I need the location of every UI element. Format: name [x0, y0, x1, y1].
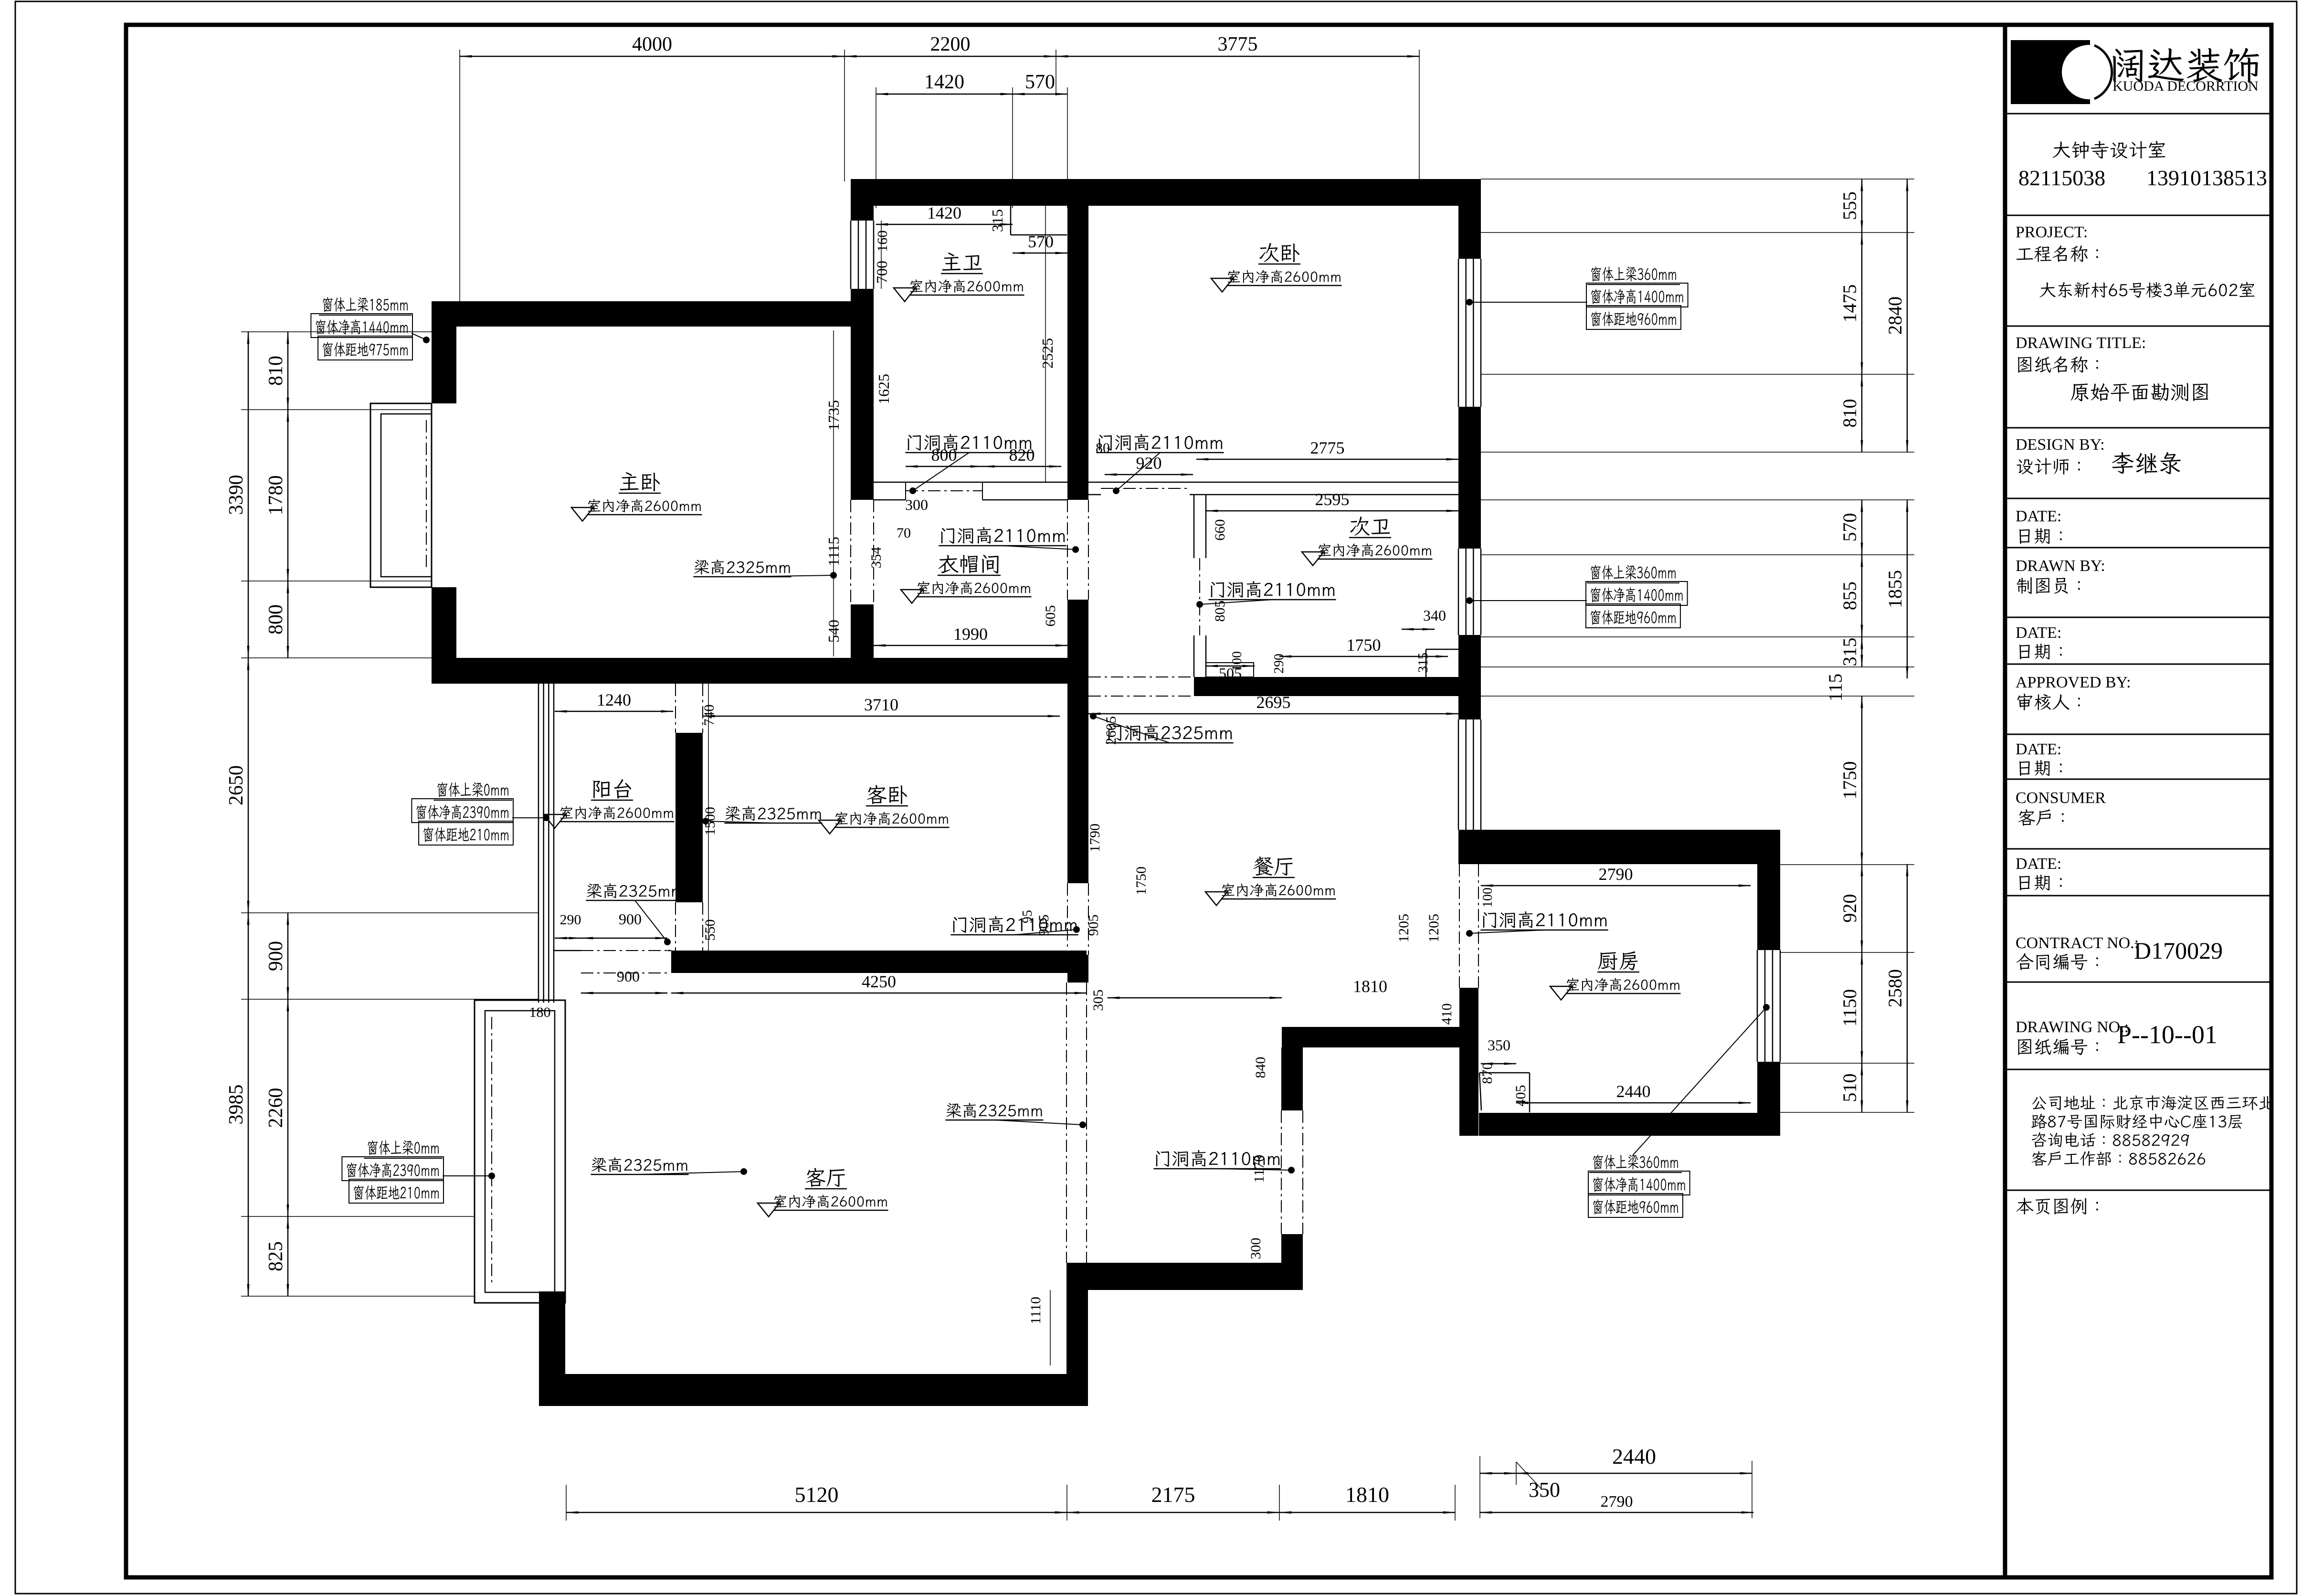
svg-text:810: 810	[1839, 399, 1860, 428]
svg-text:1810: 1810	[1353, 977, 1387, 996]
svg-text:1205: 1205	[1426, 914, 1442, 942]
svg-text:13910138513: 13910138513	[2146, 166, 2267, 190]
svg-text:900: 900	[265, 941, 287, 971]
svg-text:350: 350	[1529, 1478, 1560, 1501]
svg-text:50: 50	[686, 874, 700, 889]
svg-text:3985: 3985	[225, 1085, 247, 1125]
svg-text:2260: 2260	[265, 1088, 287, 1128]
svg-text:DESIGN BY:: DESIGN BY:	[2016, 436, 2105, 454]
svg-text:CONSUMER: CONSUMER	[2016, 789, 2106, 807]
svg-text:605: 605	[1043, 605, 1058, 627]
svg-text:660: 660	[1212, 519, 1228, 541]
svg-text:1420: 1420	[924, 71, 964, 93]
svg-text:2175: 2175	[1151, 1482, 1195, 1507]
svg-text:2440: 2440	[1616, 1082, 1651, 1101]
svg-text:905: 905	[1086, 915, 1101, 936]
svg-text:920: 920	[1839, 894, 1860, 923]
svg-text:2790: 2790	[1599, 865, 1633, 884]
svg-text:1750: 1750	[1839, 761, 1860, 800]
svg-text:740: 740	[701, 705, 717, 726]
svg-text:350: 350	[1488, 1036, 1510, 1054]
svg-text:100: 100	[1480, 888, 1495, 908]
svg-text:1110: 1110	[1028, 1297, 1044, 1324]
svg-text:KUODA DECORRTION: KUODA DECORRTION	[2112, 78, 2259, 94]
svg-text:4250: 4250	[862, 972, 896, 991]
svg-text:300: 300	[905, 496, 928, 513]
svg-text:DRAWN BY:: DRAWN BY:	[2016, 557, 2105, 575]
svg-text:115: 115	[1825, 674, 1846, 702]
svg-text:1810: 1810	[1345, 1482, 1389, 1507]
svg-text:1790: 1790	[1087, 824, 1103, 852]
svg-text:305: 305	[1090, 990, 1106, 1011]
svg-text:900: 900	[617, 968, 640, 985]
svg-text:2595: 2595	[1315, 490, 1350, 509]
svg-text:405: 405	[1513, 1085, 1529, 1107]
svg-text:2840: 2840	[1884, 296, 1906, 335]
svg-text:1205: 1205	[1396, 914, 1412, 942]
svg-text:1855: 1855	[1884, 570, 1906, 608]
svg-text:800: 800	[931, 445, 957, 465]
svg-text:P--10--01: P--10--01	[2117, 1020, 2217, 1049]
svg-text:3775: 3775	[1218, 33, 1258, 55]
svg-text:CONTRACT NO.:: CONTRACT NO.:	[2016, 934, 2139, 952]
svg-text:PROJECT:: PROJECT:	[2016, 223, 2088, 241]
svg-text:2200: 2200	[930, 33, 971, 55]
svg-text:550: 550	[702, 920, 718, 941]
svg-text:70: 70	[897, 525, 911, 541]
svg-text:2695: 2695	[1256, 693, 1291, 712]
svg-text:1750: 1750	[1133, 867, 1149, 895]
svg-text:340: 340	[1423, 607, 1446, 624]
svg-text:1150: 1150	[1839, 989, 1860, 1027]
svg-text:855: 855	[1839, 581, 1860, 610]
svg-text:3710: 3710	[864, 695, 898, 714]
svg-text:2790: 2790	[1601, 1493, 1633, 1511]
svg-text:900: 900	[619, 910, 642, 928]
svg-text:555: 555	[1839, 191, 1860, 220]
svg-text:510: 510	[1839, 1074, 1860, 1102]
svg-text:810: 810	[265, 356, 287, 386]
svg-text:800: 800	[265, 604, 287, 634]
svg-text:570: 570	[1028, 232, 1054, 251]
svg-text:DATE:: DATE:	[2016, 624, 2061, 642]
svg-text:5120: 5120	[795, 1482, 839, 1507]
svg-text:DATE:: DATE:	[2016, 740, 2061, 758]
svg-text:1475: 1475	[1839, 285, 1860, 323]
svg-text:315: 315	[1416, 653, 1431, 673]
svg-text:354: 354	[868, 547, 884, 569]
svg-text:700: 700	[873, 261, 890, 284]
svg-text:180: 180	[529, 1004, 551, 1020]
svg-text:570: 570	[1025, 71, 1055, 93]
svg-text:D170029: D170029	[2134, 937, 2223, 964]
svg-text:315: 315	[989, 209, 1006, 232]
svg-text:300: 300	[1248, 1238, 1264, 1259]
svg-text:570: 570	[1839, 513, 1860, 542]
svg-text:2775: 2775	[1310, 438, 1345, 457]
svg-text:2650: 2650	[225, 765, 247, 805]
svg-text:DRAWING NO.:: DRAWING NO.:	[2016, 1018, 2129, 1036]
svg-text:1750: 1750	[1347, 635, 1381, 655]
svg-text:3390: 3390	[225, 475, 247, 515]
svg-text:825: 825	[265, 1241, 287, 1271]
svg-text:DATE:: DATE:	[2016, 855, 2061, 873]
svg-text:1420: 1420	[927, 203, 961, 222]
svg-text:4000: 4000	[632, 33, 672, 55]
svg-text:160: 160	[875, 231, 890, 252]
svg-text:1240: 1240	[597, 690, 631, 709]
svg-text:APPROVED BY:: APPROVED BY:	[2016, 674, 2131, 691]
svg-text:315: 315	[1839, 638, 1860, 666]
svg-text:410: 410	[1439, 1004, 1455, 1025]
svg-text:290: 290	[560, 912, 581, 928]
svg-text:1780: 1780	[265, 476, 287, 516]
svg-text:840: 840	[1253, 1057, 1268, 1078]
svg-text:1625: 1625	[875, 374, 892, 404]
svg-text:1990: 1990	[953, 624, 988, 644]
svg-text:2580: 2580	[1884, 969, 1906, 1007]
svg-text:140: 140	[1066, 728, 1081, 748]
svg-text:870: 870	[1479, 1063, 1495, 1084]
svg-text:DRAWING TITLE:: DRAWING TITLE:	[2016, 334, 2146, 352]
svg-text:DATE:: DATE:	[2016, 507, 2061, 525]
svg-text:82115038: 82115038	[2018, 166, 2105, 190]
svg-text:505: 505	[1219, 665, 1242, 682]
svg-text:2525: 2525	[1039, 338, 1056, 369]
svg-text:2440: 2440	[1612, 1444, 1656, 1469]
